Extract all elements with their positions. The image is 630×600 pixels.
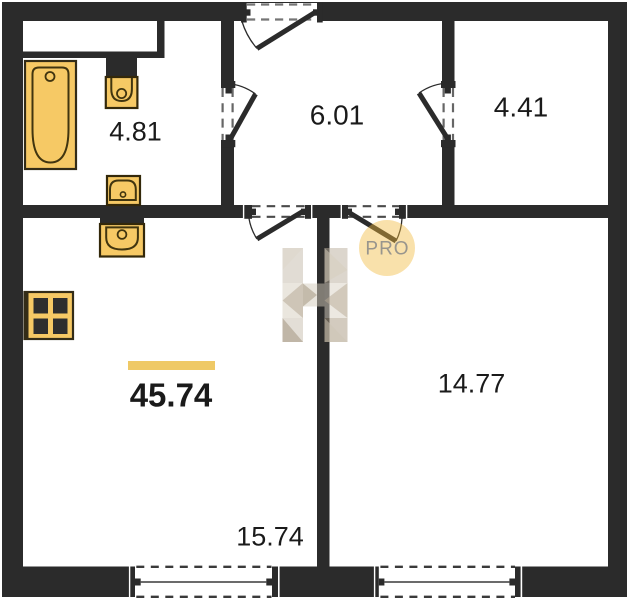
svg-text:6.01: 6.01 bbox=[310, 100, 365, 131]
svg-text:15.74: 15.74 bbox=[236, 521, 304, 551]
svg-text:PRO: PRO bbox=[365, 239, 409, 260]
svg-text:45.74: 45.74 bbox=[130, 377, 213, 414]
svg-text:4.41: 4.41 bbox=[494, 92, 549, 123]
svg-text:14.77: 14.77 bbox=[438, 369, 506, 399]
svg-text:4.81: 4.81 bbox=[109, 116, 162, 146]
